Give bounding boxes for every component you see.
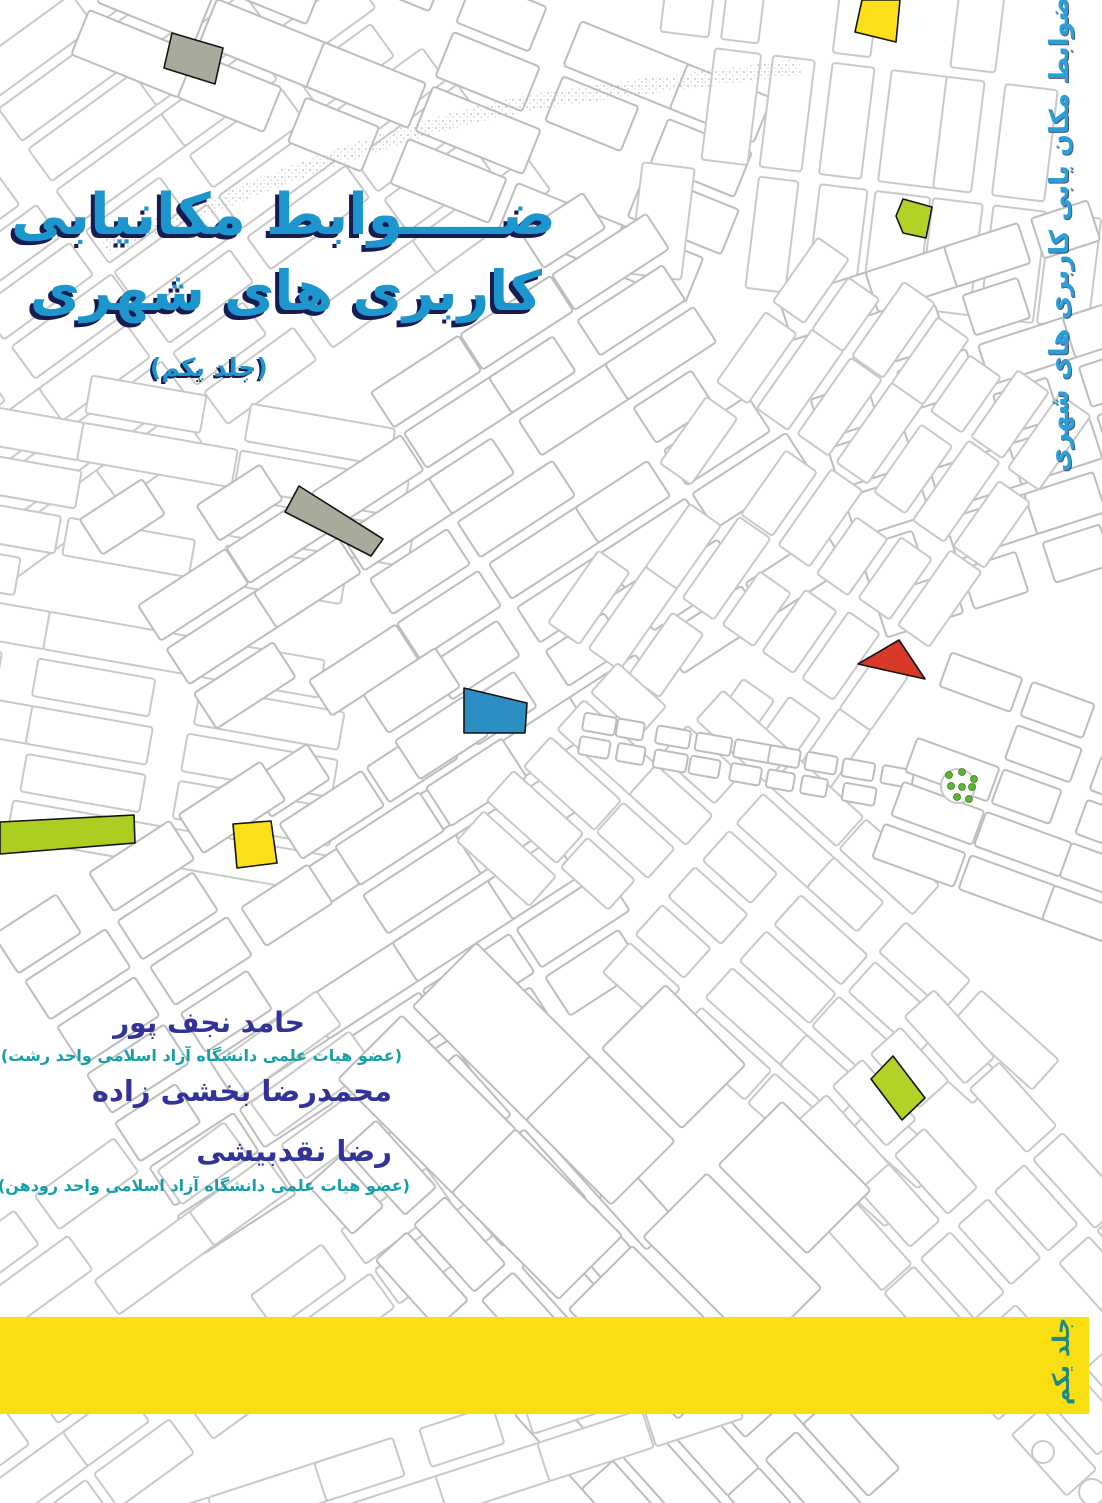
tree-dot-icon <box>954 794 961 801</box>
book-title-line2: کاربری های شهری <box>30 256 542 328</box>
tree-dot-icon <box>946 772 953 779</box>
tree-dot-icon <box>959 769 966 776</box>
spine-title-vertical: ضوابط مکان یابی کاربری های شهری <box>1044 0 1078 472</box>
volume-note: (جلد یکم) <box>150 352 268 385</box>
author-name-2: محمدرضا بخشی زاده <box>92 1073 392 1111</box>
book-cover: ضـــــوابط مکانیابی کاربری های شهری (جلد… <box>0 0 1102 1503</box>
author-name-3: رضا نقدبیشی <box>196 1133 392 1171</box>
tree-dot-icon <box>969 784 976 791</box>
footer-band <box>0 1317 1089 1414</box>
tree-dot-icon <box>948 783 955 790</box>
tree-dot-icon <box>971 776 978 783</box>
book-title-line1: ضـــــوابط مکانیابی <box>11 178 556 252</box>
author-name-1: حامد نجف پور <box>113 1005 305 1041</box>
tree-dot-icon <box>966 796 973 803</box>
tree-dot-icon <box>959 784 966 791</box>
parcel-yellow-left <box>233 821 277 868</box>
author-affiliation-3: (عضو هیات علمی دانشگاه آزاد اسلامی واحد … <box>0 1176 410 1197</box>
author-affiliation-1: (عضو هیات علمی دانشگاه آزاد اسلامی واحد … <box>1 1046 402 1067</box>
footer-volume-label: جلد یکم <box>1048 1318 1078 1405</box>
